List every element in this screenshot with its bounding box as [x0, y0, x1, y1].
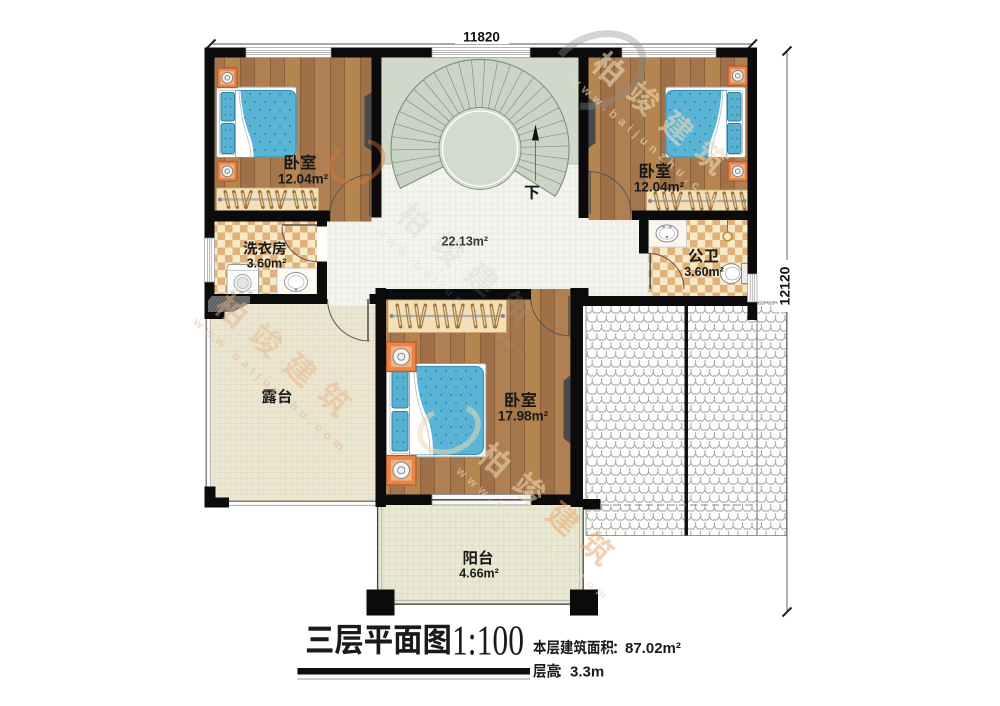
svg-text:：: ：	[612, 640, 626, 656]
svg-text:3.60m²: 3.60m²	[684, 265, 724, 279]
svg-text:1:100: 1:100	[452, 619, 524, 665]
svg-text:11820: 11820	[463, 30, 500, 45]
svg-text:：: ：	[556, 664, 570, 680]
svg-text:17.98m²: 17.98m²	[498, 409, 549, 424]
svg-text:12.04m²: 12.04m²	[278, 172, 329, 187]
svg-text:87.02m²: 87.02m²	[625, 640, 681, 657]
svg-text:3.60m²: 3.60m²	[247, 257, 287, 271]
svg-text:12.04m²: 12.04m²	[634, 180, 685, 195]
svg-text:12120: 12120	[777, 266, 793, 305]
svg-text:3.3m: 3.3m	[570, 664, 604, 681]
svg-text:4.66m²: 4.66m²	[459, 567, 499, 581]
